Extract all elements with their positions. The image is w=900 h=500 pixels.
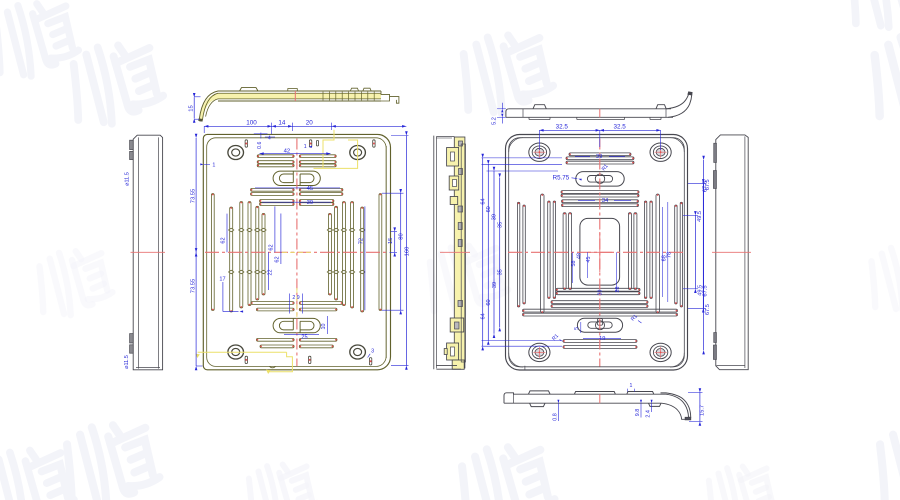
svg-text:3: 3 bbox=[371, 349, 374, 355]
svg-text:R5.75: R5.75 bbox=[553, 175, 570, 182]
svg-text:17: 17 bbox=[219, 276, 225, 282]
svg-text:42: 42 bbox=[284, 149, 291, 155]
svg-text:78: 78 bbox=[667, 252, 673, 258]
svg-text:32.5: 32.5 bbox=[556, 124, 569, 131]
svg-text:62: 62 bbox=[269, 244, 275, 250]
svg-text:64: 64 bbox=[481, 198, 487, 204]
svg-text:64: 64 bbox=[480, 313, 486, 319]
svg-text:62: 62 bbox=[221, 237, 227, 243]
svg-text:14: 14 bbox=[278, 120, 286, 127]
svg-text:0.8: 0.8 bbox=[552, 413, 558, 421]
svg-text:35: 35 bbox=[497, 222, 503, 228]
svg-text:15: 15 bbox=[388, 238, 394, 244]
svg-text:100: 100 bbox=[246, 120, 257, 127]
svg-text:28: 28 bbox=[615, 287, 621, 293]
svg-text:22: 22 bbox=[268, 270, 274, 276]
svg-text:45: 45 bbox=[307, 186, 314, 192]
svg-text:72: 72 bbox=[359, 238, 365, 244]
svg-text:19: 19 bbox=[599, 336, 605, 342]
svg-text:39: 39 bbox=[492, 214, 498, 220]
svg-text:39: 39 bbox=[307, 200, 314, 206]
svg-text:67.5: 67.5 bbox=[705, 179, 711, 190]
svg-text:2.4: 2.4 bbox=[646, 410, 652, 418]
svg-text:45: 45 bbox=[586, 257, 592, 263]
svg-text:1: 1 bbox=[630, 383, 633, 389]
svg-text:⌀11.5: ⌀11.5 bbox=[124, 355, 130, 369]
svg-text:48: 48 bbox=[577, 253, 583, 259]
svg-text:32.5: 32.5 bbox=[613, 124, 626, 131]
svg-text:1: 1 bbox=[212, 162, 215, 168]
svg-text:49.5: 49.5 bbox=[698, 285, 704, 296]
svg-text:160: 160 bbox=[404, 247, 410, 257]
svg-text:10: 10 bbox=[321, 324, 327, 330]
svg-text:15: 15 bbox=[189, 105, 195, 111]
svg-text:67.5: 67.5 bbox=[705, 304, 711, 315]
svg-text:25: 25 bbox=[301, 334, 307, 340]
svg-text:2 9: 2 9 bbox=[292, 295, 299, 301]
svg-text:60: 60 bbox=[486, 299, 492, 305]
svg-text:1: 1 bbox=[304, 144, 307, 150]
svg-text:34: 34 bbox=[602, 198, 609, 204]
svg-text:5.2: 5.2 bbox=[492, 117, 498, 125]
svg-text:80: 80 bbox=[399, 233, 405, 239]
svg-text:20: 20 bbox=[306, 120, 314, 127]
svg-text:60: 60 bbox=[486, 206, 492, 212]
svg-text:0.6: 0.6 bbox=[257, 141, 263, 148]
svg-text:5: 5 bbox=[574, 327, 580, 330]
svg-text:35: 35 bbox=[497, 269, 503, 275]
svg-text:58: 58 bbox=[571, 261, 577, 267]
svg-text:49.5: 49.5 bbox=[697, 211, 703, 222]
svg-text:⌀11.5: ⌀11.5 bbox=[124, 172, 130, 186]
svg-text:73.55: 73.55 bbox=[190, 189, 196, 204]
svg-text:39: 39 bbox=[492, 282, 498, 288]
svg-text:62: 62 bbox=[275, 256, 281, 262]
svg-text:9.8: 9.8 bbox=[635, 409, 641, 417]
svg-text:73.55: 73.55 bbox=[190, 279, 196, 294]
svg-text:15.7: 15.7 bbox=[700, 405, 706, 416]
svg-text:4: 4 bbox=[268, 136, 271, 142]
svg-text:39: 39 bbox=[596, 154, 603, 160]
svg-text:39: 39 bbox=[598, 290, 604, 296]
